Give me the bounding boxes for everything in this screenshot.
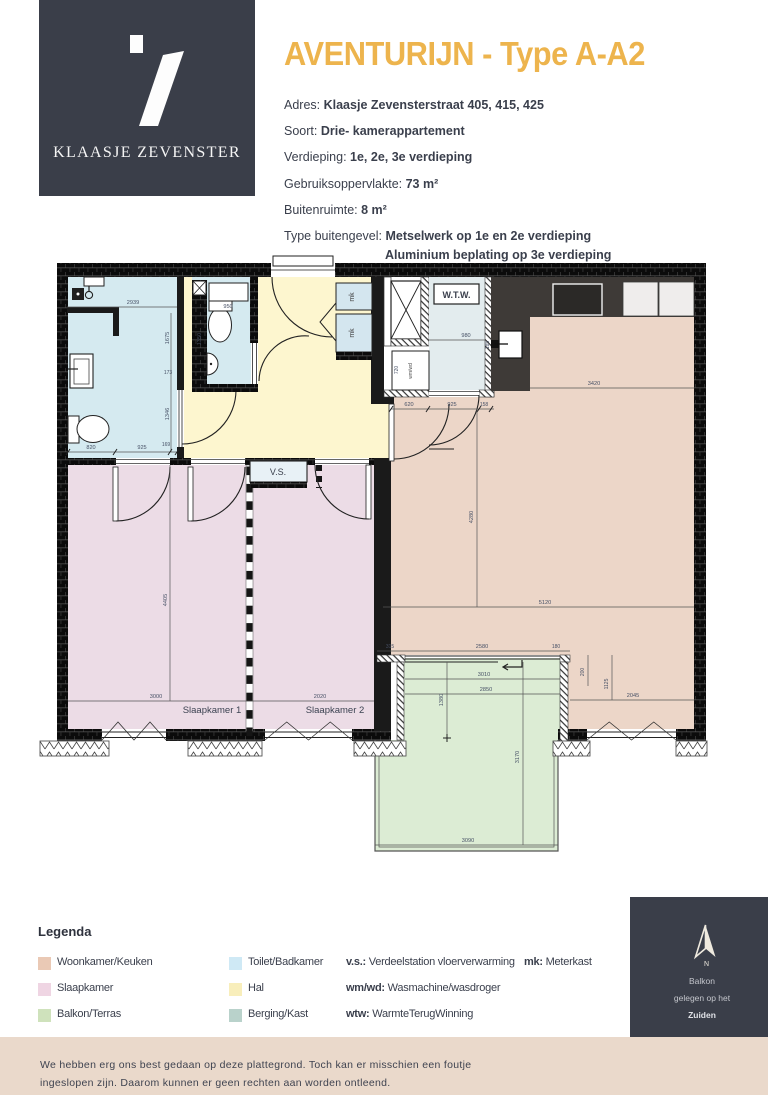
svg-text:5120: 5120 bbox=[539, 600, 551, 606]
svg-text:3420: 3420 bbox=[588, 381, 600, 387]
svg-text:N: N bbox=[704, 961, 709, 968]
svg-text:2580: 2580 bbox=[476, 644, 488, 650]
svg-text:200: 200 bbox=[580, 668, 586, 677]
svg-text:Zuiden: Zuiden bbox=[688, 1010, 716, 1020]
svg-text:315: 315 bbox=[386, 644, 395, 650]
svg-text:2045: 2045 bbox=[627, 693, 639, 699]
svg-text:Slaapkamer 2: Slaapkamer 2 bbox=[306, 705, 365, 716]
svg-text:158: 158 bbox=[480, 402, 489, 408]
svg-text:720: 720 bbox=[394, 366, 400, 375]
svg-text:173: 173 bbox=[164, 370, 173, 376]
svg-text:mk: mk bbox=[349, 292, 356, 302]
svg-text:620: 620 bbox=[404, 402, 413, 408]
svg-text:V.S.: V.S. bbox=[270, 467, 286, 477]
svg-text:1346: 1346 bbox=[165, 408, 171, 420]
svg-text:Balkon: Balkon bbox=[689, 976, 715, 986]
svg-text:169: 169 bbox=[162, 442, 171, 448]
svg-text:mk: mk bbox=[349, 328, 356, 338]
svg-text:3000: 3000 bbox=[150, 694, 162, 700]
svg-text:3010: 3010 bbox=[478, 672, 490, 678]
svg-text:980: 980 bbox=[461, 333, 470, 339]
svg-text:1675: 1675 bbox=[165, 332, 171, 344]
svg-text:185: 185 bbox=[485, 341, 491, 350]
svg-text:3090: 3090 bbox=[462, 838, 474, 844]
svg-text:180: 180 bbox=[552, 644, 561, 650]
svg-text:4405: 4405 bbox=[163, 594, 169, 606]
svg-text:925: 925 bbox=[447, 402, 456, 408]
svg-text:wm/wd: wm/wd bbox=[408, 363, 414, 379]
svg-text:925: 925 bbox=[137, 445, 146, 451]
svg-text:1350: 1350 bbox=[197, 333, 203, 345]
svg-text:Slaapkamer 1: Slaapkamer 1 bbox=[183, 705, 242, 716]
svg-text:1125: 1125 bbox=[604, 678, 610, 689]
svg-text:2020: 2020 bbox=[314, 694, 326, 700]
svg-text:gelegen op het: gelegen op het bbox=[674, 993, 731, 1003]
svg-text:3170: 3170 bbox=[515, 751, 521, 763]
svg-text:4280: 4280 bbox=[469, 511, 475, 523]
svg-text:950: 950 bbox=[223, 304, 232, 310]
svg-text:W.T.W.: W.T.W. bbox=[443, 290, 471, 300]
svg-text:2939: 2939 bbox=[127, 300, 139, 306]
svg-text:2850: 2850 bbox=[480, 687, 492, 693]
svg-text:1380: 1380 bbox=[439, 694, 445, 706]
svg-text:820: 820 bbox=[86, 445, 95, 451]
